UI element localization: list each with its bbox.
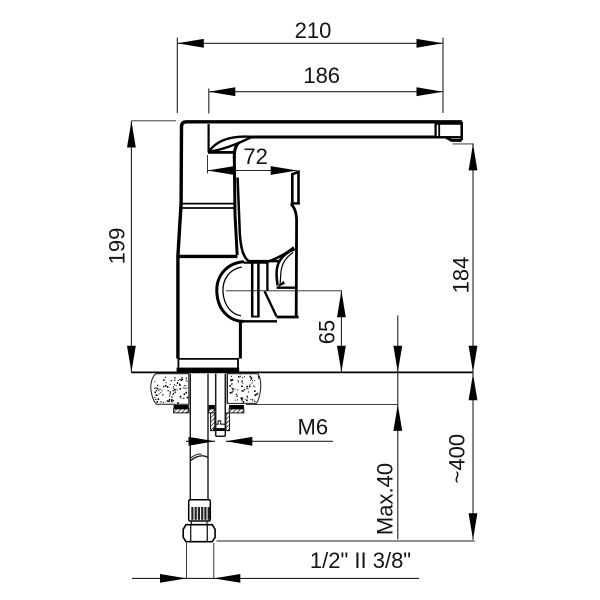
svg-text:Max.40: Max.40 <box>373 463 398 535</box>
svg-text:65: 65 <box>315 320 340 344</box>
svg-text:184: 184 <box>449 257 474 294</box>
svg-text:1/2" II 3/8": 1/2" II 3/8" <box>310 548 411 573</box>
svg-text:~400: ~400 <box>444 434 469 484</box>
svg-text:M6: M6 <box>298 415 329 440</box>
svg-text:72: 72 <box>243 144 267 169</box>
svg-text:186: 186 <box>303 63 340 88</box>
svg-text:199: 199 <box>105 228 130 265</box>
svg-text:210: 210 <box>295 18 332 43</box>
